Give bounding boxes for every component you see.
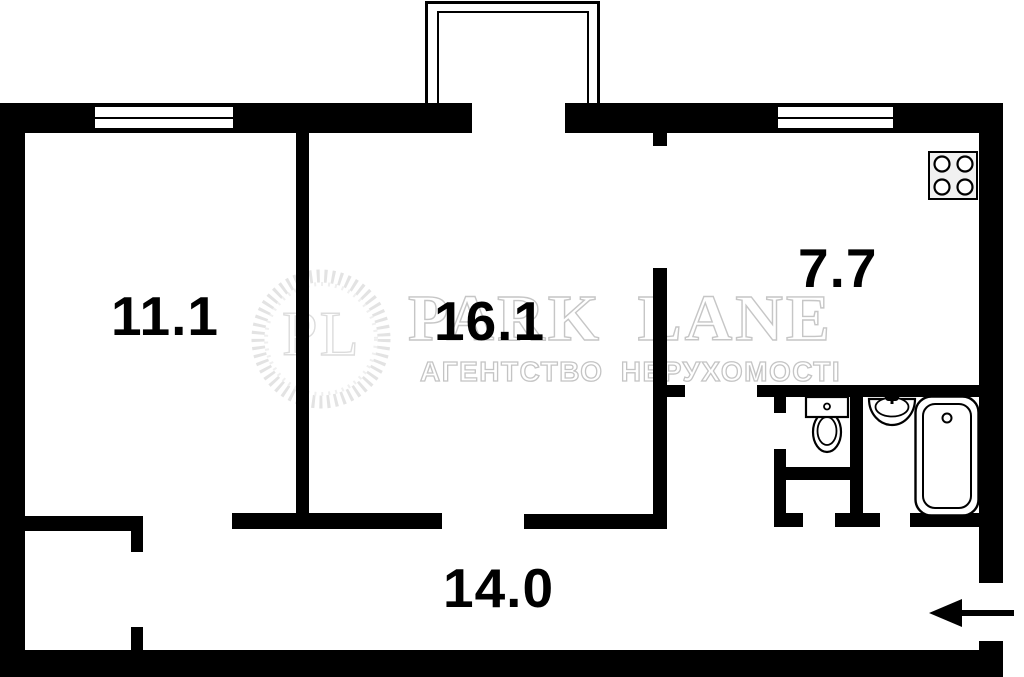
wall-room1-bottom xyxy=(25,516,143,531)
wall-closet-stub-bottom xyxy=(131,627,143,652)
wall-right-upper xyxy=(979,103,1003,583)
wall-wc-bath-divider xyxy=(850,385,863,527)
entrance-arrow-icon xyxy=(924,596,1020,632)
wall-closet-stub-top xyxy=(131,516,143,552)
wall-bottom xyxy=(0,650,1003,677)
kitchen-area-label: 7.7 xyxy=(798,241,877,296)
wall-hall-top-right xyxy=(524,514,667,529)
wall-right-lower xyxy=(979,641,1003,677)
wall-left xyxy=(0,103,25,653)
wall-bath-top-stub xyxy=(667,385,685,397)
sink-icon xyxy=(866,392,918,428)
wall-bath-bottom-seg1 xyxy=(835,513,880,527)
watermark-tagline: АГЕНТСТВО НЕРУХОМОСТІ xyxy=(420,358,841,386)
window-room-1 xyxy=(95,105,233,130)
room-2-area-label: 16.1 xyxy=(434,294,545,349)
floor-plan: PL PARK LANE АГЕНТСТВО НЕРУХОМОСТІ xyxy=(0,0,1024,677)
wall-hall-top-left xyxy=(232,513,442,529)
bathtub-icon xyxy=(914,395,980,517)
window-mullion xyxy=(95,117,233,119)
balcony-outline-inner xyxy=(437,11,589,103)
wall-wc-left-upper xyxy=(774,385,786,413)
window-mullion xyxy=(778,117,893,119)
hallway-area-label: 14.0 xyxy=(443,561,554,616)
wall-divider-room2-kitchen xyxy=(653,268,667,529)
wall-wc-bottom xyxy=(786,467,863,480)
toilet-icon xyxy=(804,395,850,457)
wall-wc-left-foot xyxy=(774,513,803,527)
balcony-door-opening xyxy=(472,103,565,133)
wall-divider-room2-kitchen-stub xyxy=(653,131,667,146)
watermark-monogram: PL xyxy=(282,302,361,366)
wall-divider-room1-room2 xyxy=(296,131,309,529)
room-1-area-label: 11.1 xyxy=(111,289,219,344)
window-kitchen xyxy=(778,105,893,130)
stove-icon xyxy=(928,151,978,200)
